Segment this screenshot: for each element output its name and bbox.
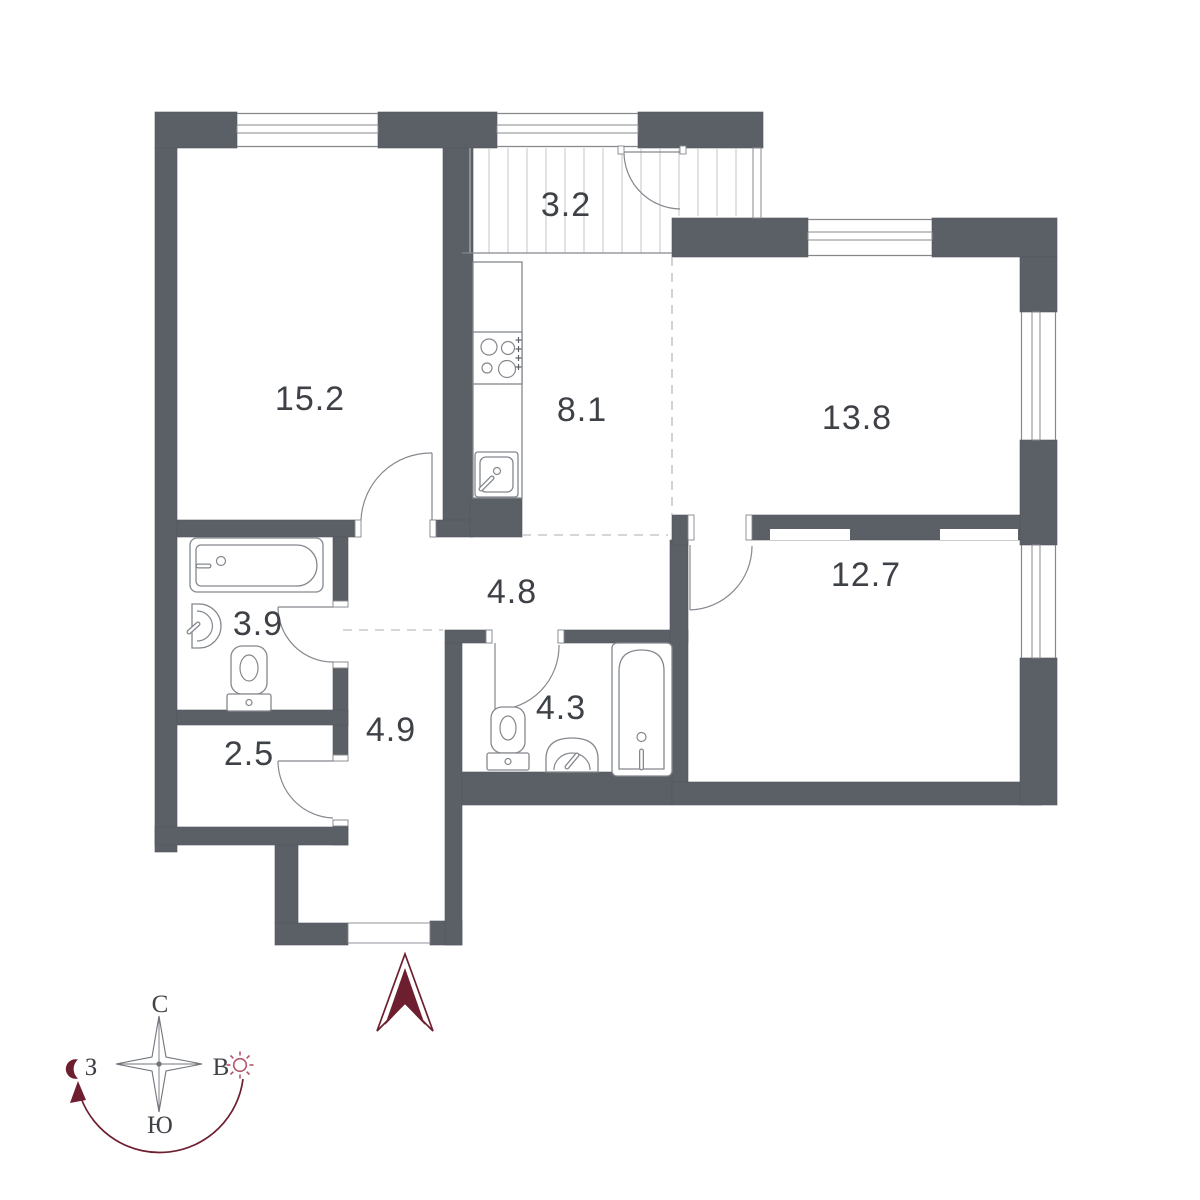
- window-room-right-upper: [1022, 312, 1056, 440]
- door-balcony: [618, 146, 686, 209]
- balcony-glazing: [753, 148, 761, 218]
- moon-icon: [66, 1059, 78, 1079]
- bathtub-icon: [190, 538, 323, 592]
- compass: С Ю З В: [66, 991, 254, 1153]
- door-living-room: [355, 453, 436, 537]
- toilet-icon: [227, 646, 271, 711]
- door-storage: [278, 755, 348, 826]
- entrance-opening: [348, 923, 430, 943]
- compass-east-label: В: [213, 1054, 230, 1081]
- door-bedroom: [688, 515, 752, 610]
- room-label-storage: 2.5: [224, 735, 274, 773]
- window-room-top-right: [808, 220, 932, 256]
- toilet-icon: [487, 707, 529, 770]
- kitchen-sink-icon: [475, 452, 518, 497]
- room-label-hallway: 4.9: [366, 711, 416, 749]
- sun-icon: [227, 1052, 254, 1079]
- room-label-living-room: 15.2: [275, 380, 345, 418]
- floor-plan: 15.2 3.2 8.1 13.8 4.8 3.9 2.5 4.9 4.3 12…: [0, 0, 1200, 1200]
- window-balcony: [497, 114, 638, 147]
- windows: [237, 114, 1056, 659]
- room-label-corridor: 4.8: [487, 573, 537, 611]
- compass-west-label: З: [85, 1054, 98, 1081]
- room-label-bathroom: 3.9: [233, 605, 283, 643]
- room-label-room-top-right: 13.8: [822, 399, 892, 437]
- room-label-bedroom: 12.7: [831, 556, 901, 594]
- floor-plan-page: 15.2 3.2 8.1 13.8 4.8 3.9 2.5 4.9 4.3 12…: [0, 0, 1200, 1200]
- bathtub-icon: [612, 643, 672, 776]
- compass-south-label: Ю: [147, 1112, 173, 1139]
- stove-icon: [473, 332, 522, 384]
- door-bathroom: [278, 601, 348, 668]
- room-label-balcony: 3.2: [541, 186, 591, 224]
- room-labels: 15.2 3.2 8.1 13.8 4.8 3.9 2.5 4.9 4.3 12…: [224, 186, 901, 773]
- window-bedroom: [1022, 545, 1056, 658]
- kitchen-fixtures: [473, 262, 522, 498]
- wash-basin-icon: [189, 604, 221, 648]
- wash-basin-icon: [546, 738, 598, 772]
- entrance-arrow: [377, 954, 433, 1031]
- room-label-wc: 4.3: [536, 689, 586, 727]
- room-label-kitchen: 8.1: [557, 391, 607, 429]
- compass-north-label: С: [152, 991, 169, 1018]
- window-living-room: [237, 114, 378, 147]
